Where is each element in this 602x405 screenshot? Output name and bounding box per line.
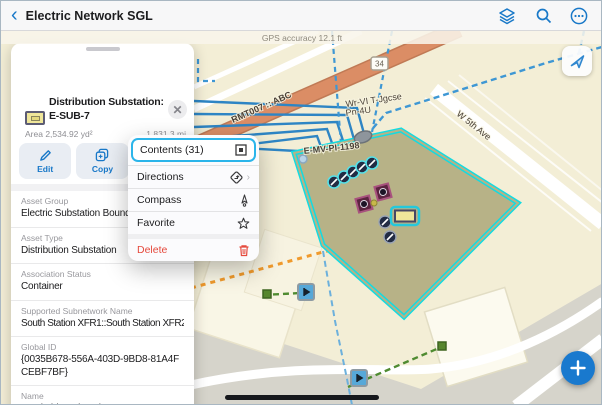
location-arrow-icon xyxy=(569,53,586,70)
field-row: Supported Subnetwork NameSouth Station X… xyxy=(11,301,194,338)
directions-icon xyxy=(230,171,243,184)
contents-icon xyxy=(235,144,247,156)
app-window: 34 RMT007 :: ABC E-MV-PI-1198 W 5th Ave … xyxy=(0,0,602,405)
svg-text:34: 34 xyxy=(375,60,384,69)
line-end-square xyxy=(438,342,446,350)
plus-icon xyxy=(570,360,586,376)
menu-item-compass[interactable]: Compass xyxy=(128,189,259,211)
more-context-menu: Contents (31) Directions › Compass xyxy=(128,135,259,261)
field-row: Global ID{0035B678-556A-403D-9BD8-81A4FC… xyxy=(11,337,194,386)
chevron-right-icon: › xyxy=(247,172,250,183)
home-indicator xyxy=(225,395,379,400)
feature-title: Distribution Substation: E-SUB-7 xyxy=(49,96,173,123)
add-feature-fab[interactable] xyxy=(561,351,595,385)
edit-button[interactable]: Edit xyxy=(19,143,71,179)
gps-accuracy-text: GPS accuracy 12.1 ft xyxy=(262,33,342,43)
copy-icon xyxy=(95,148,109,162)
back-button[interactable]: ‹ xyxy=(11,5,18,25)
menu-item-delete[interactable]: Delete xyxy=(128,239,259,261)
close-panel-button[interactable]: ✕ xyxy=(168,100,187,119)
gps-accuracy-banner: GPS accuracy 12.1 ft xyxy=(1,31,602,44)
panel-drag-handle[interactable] xyxy=(86,47,120,51)
top-nav-bar: ‹ Electric Network SGL xyxy=(1,1,602,31)
menu-item-favorite[interactable]: Favorite xyxy=(128,212,259,234)
overflow-menu-icon[interactable] xyxy=(567,4,591,28)
compass-icon xyxy=(239,194,250,207)
highway-shield: 34 xyxy=(371,57,388,70)
menu-item-contents[interactable]: Contents (31) xyxy=(131,138,256,162)
field-row: Association StatusContainer xyxy=(11,264,194,301)
line-end-square xyxy=(263,290,271,298)
field-row: NameSouthside Substation xyxy=(11,386,194,405)
substation-point-symbol[interactable] xyxy=(391,207,419,225)
junction-dot xyxy=(371,200,377,206)
my-location-button[interactable] xyxy=(562,46,592,76)
trash-icon xyxy=(238,244,250,257)
star-icon xyxy=(237,217,250,230)
menu-item-directions[interactable]: Directions › xyxy=(128,166,259,188)
copy-button[interactable]: Copy xyxy=(76,143,128,179)
port-symbol[interactable] xyxy=(299,155,307,163)
pencil-icon xyxy=(39,149,52,162)
feature-area: Area 2,534.92 yd² xyxy=(25,129,93,139)
search-icon[interactable] xyxy=(531,4,555,28)
layers-icon[interactable] xyxy=(495,4,519,28)
map-title: Electric Network SGL xyxy=(26,9,153,23)
substation-feature-icon xyxy=(25,111,45,125)
